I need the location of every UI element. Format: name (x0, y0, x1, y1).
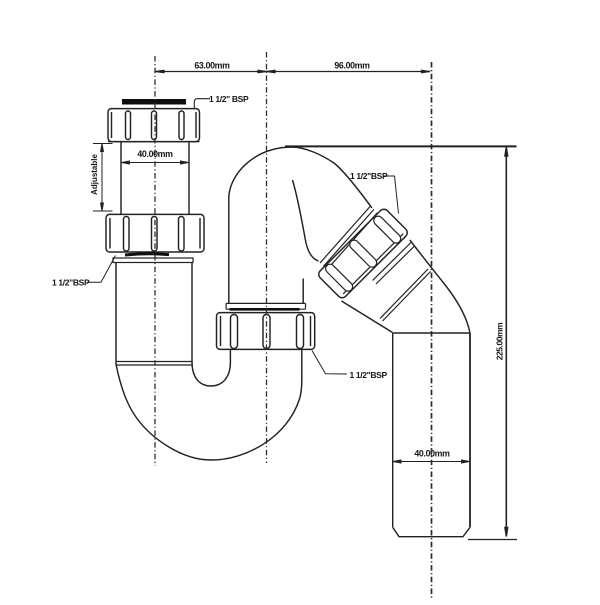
svg-text:63.00mm: 63.00mm (194, 61, 230, 71)
svg-text:1 1/2"BSP: 1 1/2"BSP (52, 278, 90, 288)
svg-text:1 1/2"BSP: 1 1/2"BSP (350, 171, 388, 181)
svg-text:1 1/2"BSP: 1 1/2"BSP (350, 370, 388, 380)
svg-text:96.00mm: 96.00mm (334, 61, 370, 71)
svg-text:Adjustable: Adjustable (90, 154, 99, 195)
svg-text:1 1/2" BSP: 1 1/2" BSP (209, 94, 249, 104)
svg-text:225.00mm: 225.00mm (495, 322, 505, 360)
